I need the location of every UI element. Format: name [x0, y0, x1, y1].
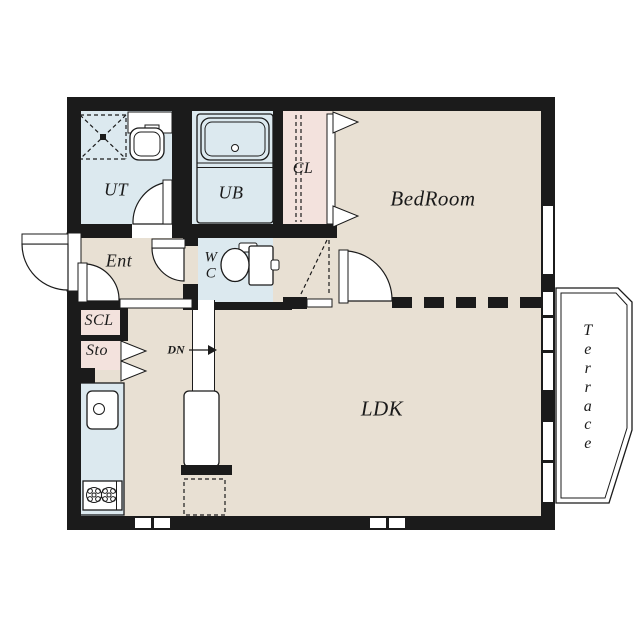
room-label-terrace: Terrace [582, 322, 595, 454]
wall-sto-notch [81, 368, 95, 383]
partition-dash [488, 297, 508, 308]
hall-ldk-step [307, 299, 332, 307]
wall-wc-bottom-right [215, 302, 292, 310]
wc-label-line1: W [205, 250, 218, 266]
room-label-wc: W C [205, 250, 218, 282]
room-label-sto: Sto [86, 342, 108, 360]
partition-dash [520, 297, 541, 308]
front-door-swing [22, 233, 81, 291]
wall-ut-ent [81, 224, 132, 238]
room-label-bedroom: BedRoom [390, 187, 475, 212]
partition-dash [456, 297, 476, 308]
wall-ut-ub [172, 111, 192, 238]
wall-corridor-ldk [283, 297, 307, 309]
entry-step [120, 299, 192, 308]
wall-left-upper [67, 97, 81, 233]
window-bottom-1 [135, 516, 170, 530]
floorplan: UT UB CL BedRoom Ent W C SCL Sto DN LDK … [0, 0, 640, 640]
partition-dash [424, 297, 444, 308]
window-ldk-right-2 [541, 422, 555, 502]
stove-icon [83, 481, 122, 510]
toilet-icon [221, 243, 279, 285]
window-bottom-2 [370, 516, 405, 530]
window-ldk-right-1 [541, 292, 555, 390]
wall-ub-cl [273, 111, 283, 224]
room-label-ut: UT [104, 180, 128, 201]
bedroom-floor [330, 111, 541, 238]
wall-left-lower [67, 291, 81, 530]
window-bedroom-right [541, 206, 555, 274]
wall-cl-bottom [273, 224, 337, 238]
wc-label-line2: C [205, 266, 218, 282]
room-label-ent: Ent [106, 251, 133, 272]
wall-scl-sto-divider [81, 335, 128, 341]
room-label-ldk: LDK [361, 397, 403, 422]
room-label-cl: CL [293, 160, 314, 178]
partition-dash [392, 297, 412, 308]
room-label-ub: UB [219, 183, 244, 204]
ldk-floor [81, 238, 541, 516]
room-label-scl: SCL [84, 312, 113, 330]
wall-top [67, 97, 555, 111]
stairs-down-label: DN [167, 343, 184, 358]
wall-stairs-bottom [181, 465, 232, 475]
